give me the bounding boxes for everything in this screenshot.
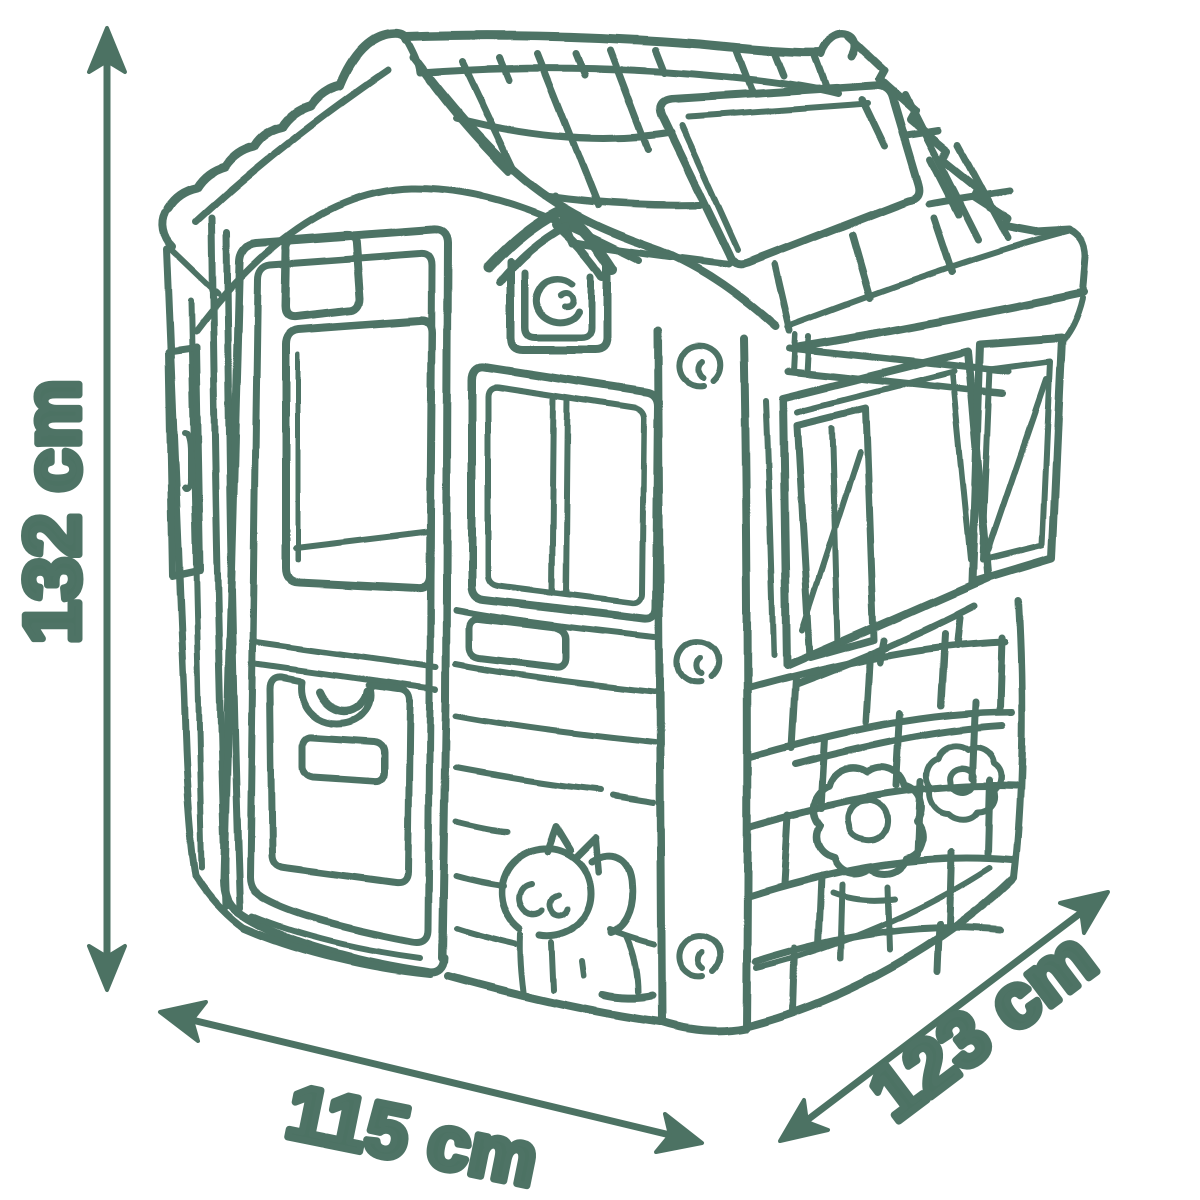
svg-text:115 cm: 115 cm xyxy=(280,1069,545,1200)
svg-text:132 cm: 132 cm xyxy=(8,379,96,644)
